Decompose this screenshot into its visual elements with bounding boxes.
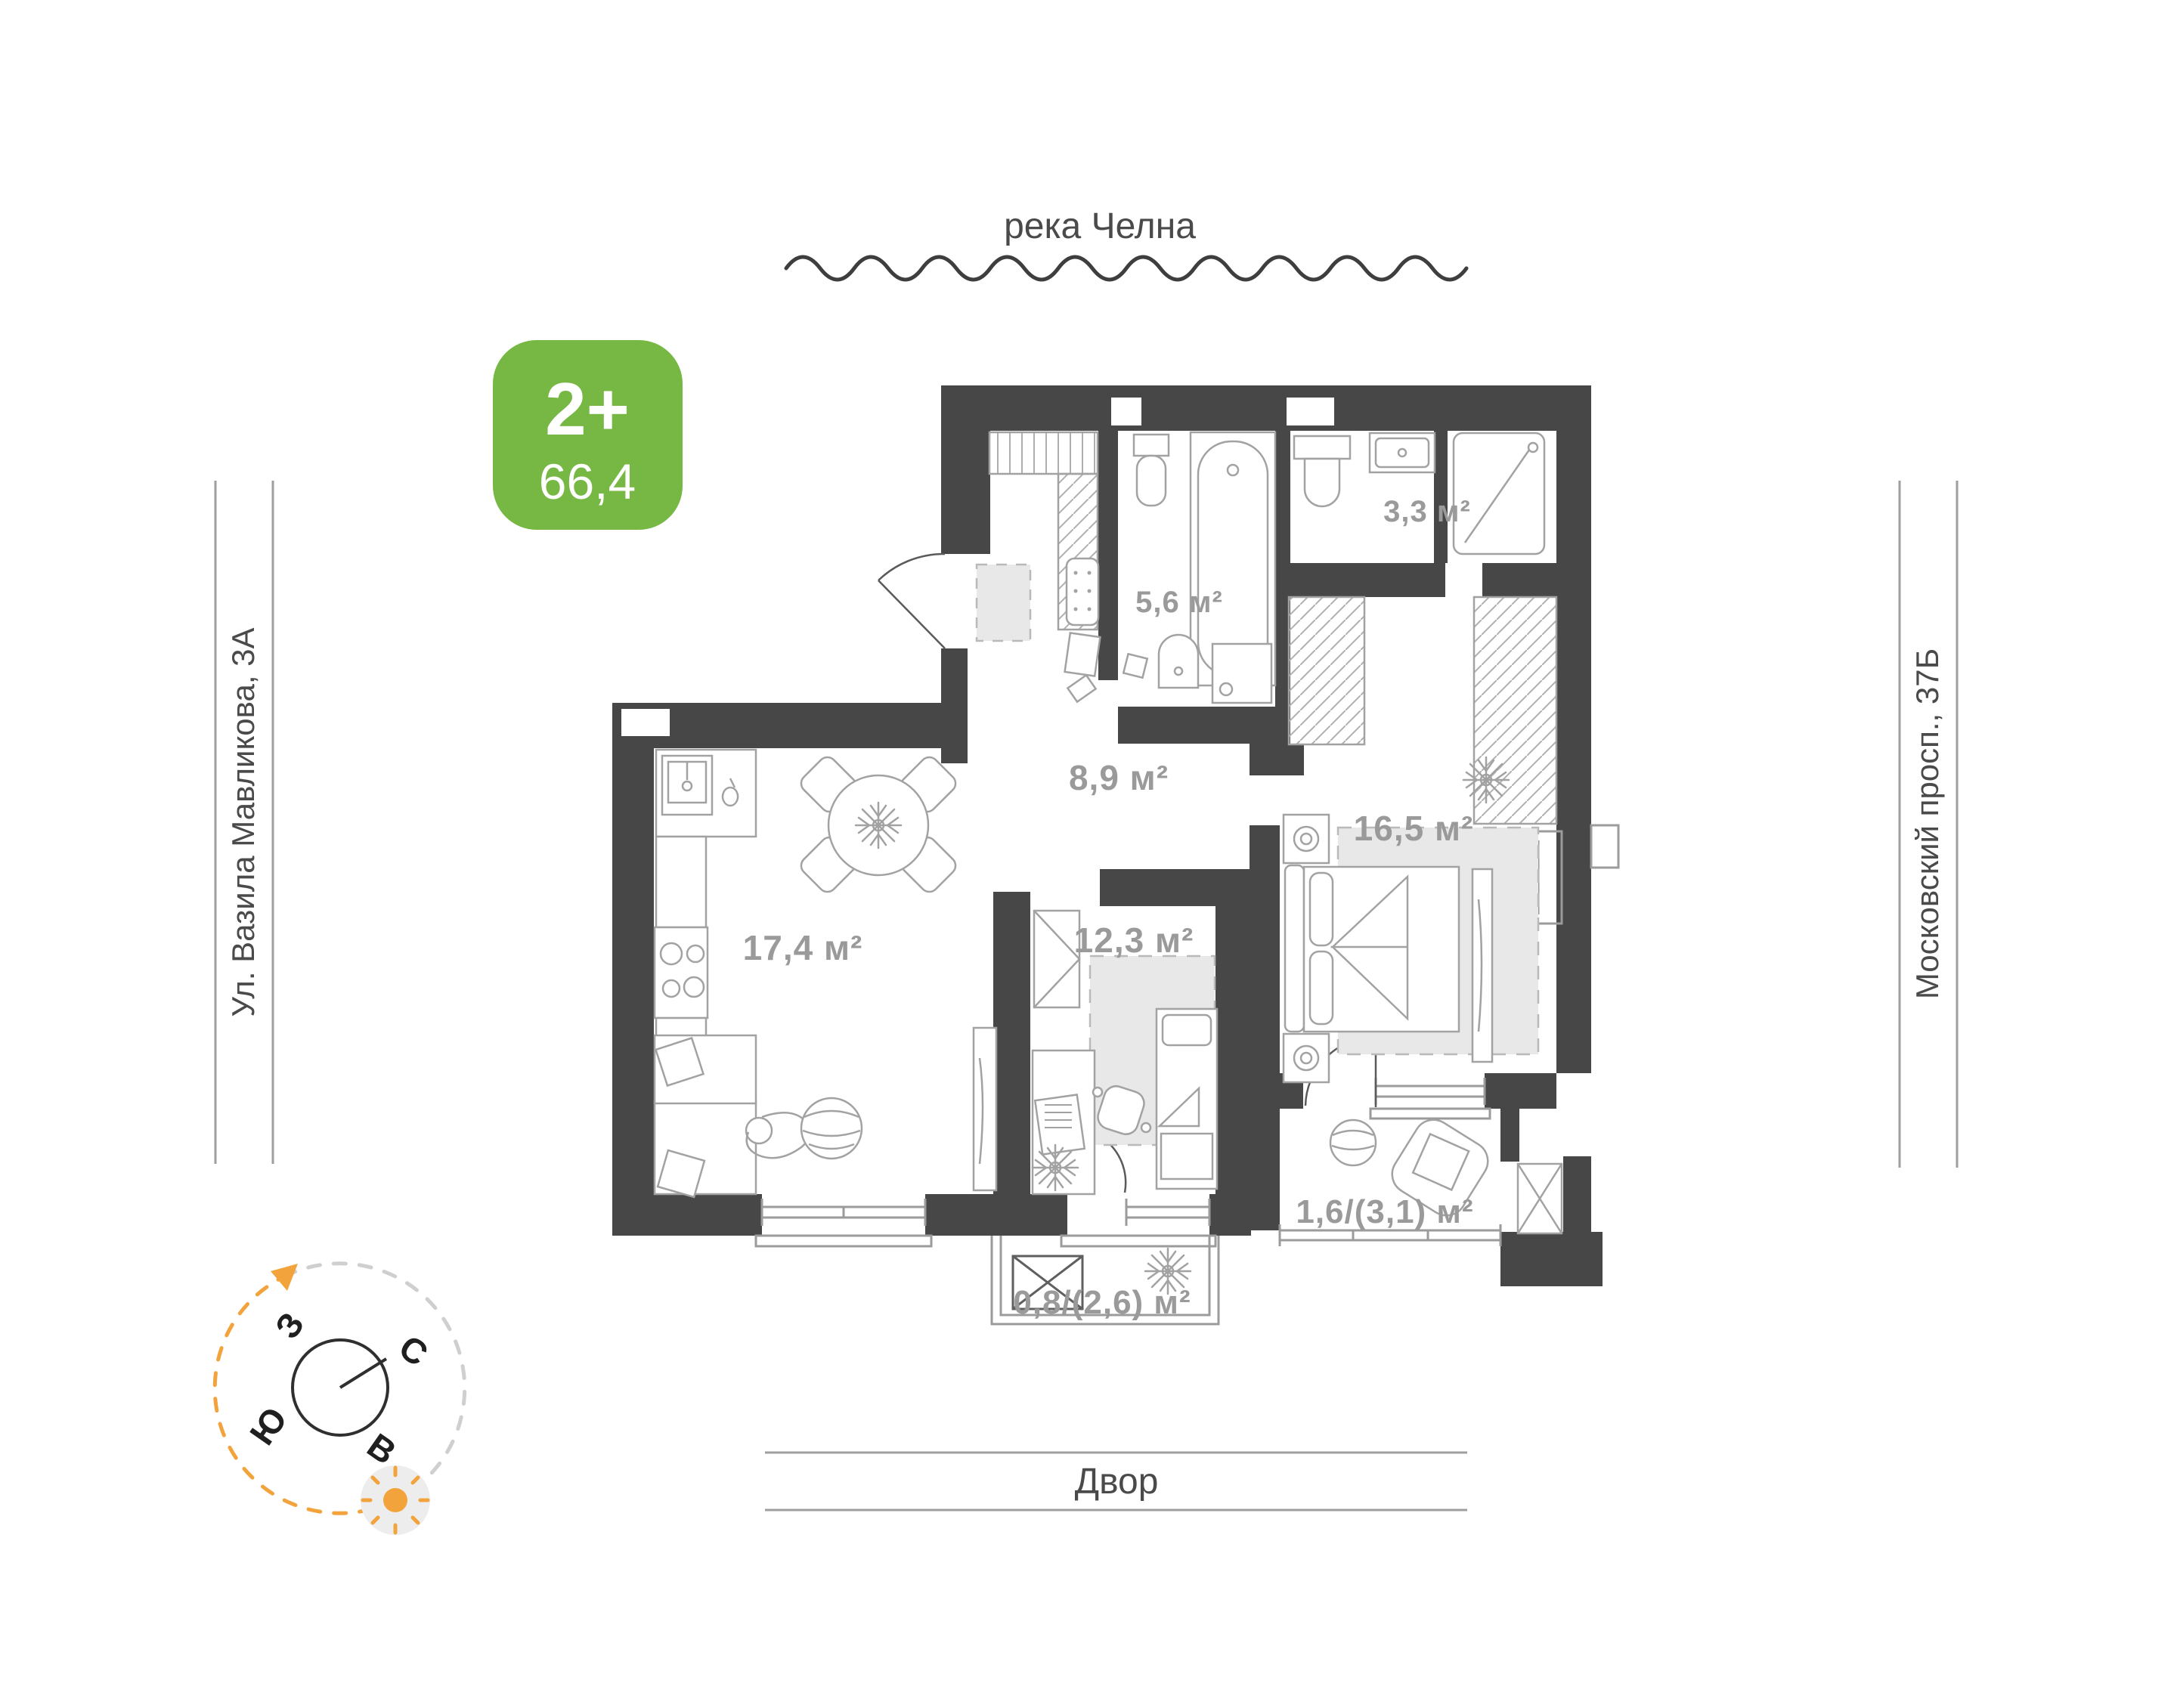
floorplan-page: река Челна Ул. Вазила Мавликова, 3А Моск…: [0, 0, 2177, 1708]
compass: З С Ю В: [215, 1264, 464, 1535]
label-room: 12,3 м²: [1074, 921, 1194, 960]
label-hallway: 8,9 м²: [1069, 758, 1169, 797]
street-left-label: Ул. Вазила Мавликова, 3А: [225, 627, 261, 1016]
doormat: [977, 565, 1030, 641]
courtyard-annotation: Двор: [765, 1453, 1467, 1510]
compass-east: В: [361, 1425, 404, 1472]
compass-north: С: [392, 1327, 435, 1374]
label-loggia: 1,6/(3,1) м²: [1296, 1193, 1473, 1230]
label-bedroom: 16,5 м²: [1354, 809, 1474, 848]
compass-west: З: [267, 1305, 311, 1345]
compass-south: Ю: [242, 1400, 295, 1452]
river-annotation: река Челна: [786, 206, 1466, 280]
badge-room-type: 2+: [545, 367, 630, 450]
direction-arrow-icon: [271, 1264, 298, 1291]
kitchen-furniture: [655, 750, 996, 1197]
floorplan-canvas: река Челна Ул. Вазила Мавликова, 3А Моск…: [0, 0, 2177, 1708]
river-wave-icon: [786, 257, 1466, 280]
bathroom-fixtures: [1123, 432, 1275, 703]
courtyard-label: Двор: [1075, 1462, 1159, 1502]
apartment-badge: 2+ 66,4: [493, 340, 683, 530]
label-kitchen-living: 17,4 м²: [743, 928, 863, 967]
floor-plan: 17,4 м² 8,9 м² 5,6 м² 3,3 м² 16,5 м² 12,…: [612, 385, 1618, 1324]
street-right-annotation: Московский просп., 37Б: [1900, 481, 1957, 1168]
label-bathroom: 5,6 м²: [1135, 586, 1223, 619]
street-right-label: Московский просп., 37Б: [1909, 648, 1945, 999]
label-wc: 3,3 м²: [1383, 495, 1471, 528]
table-plant-icon: [856, 803, 901, 848]
river-label: река Челна: [1004, 206, 1196, 246]
wc-fixtures: [1294, 433, 1544, 554]
badge-area: 66,4: [539, 453, 636, 509]
street-left-annotation: Ул. Вазила Мавликова, 3А: [215, 481, 273, 1164]
label-balcony: 0,8/(2,6) м²: [1013, 1284, 1191, 1321]
